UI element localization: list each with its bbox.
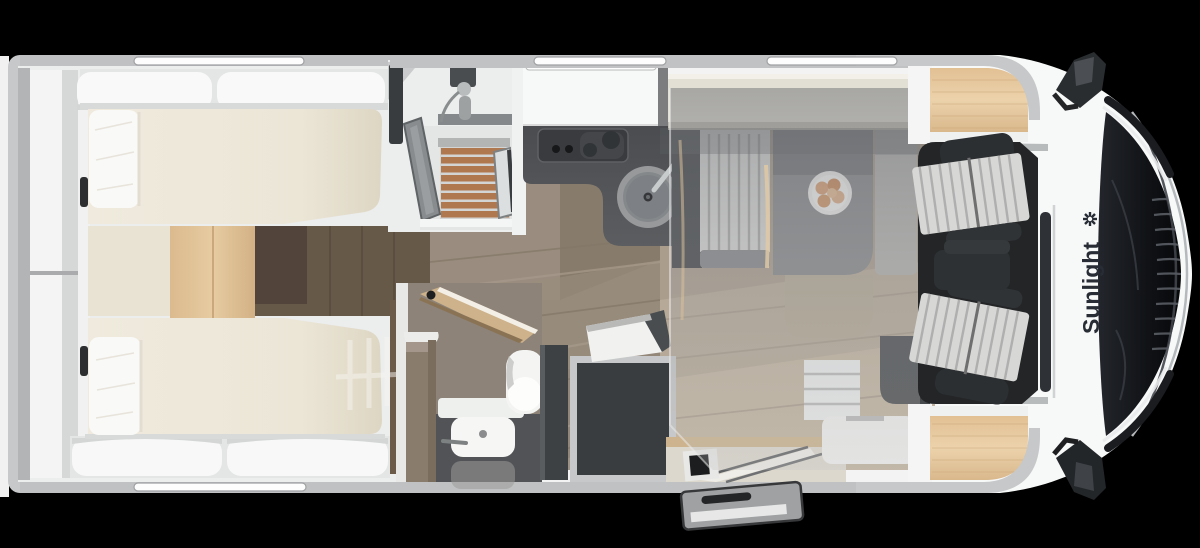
- svg-text:Sunlight: Sunlight: [1078, 242, 1104, 334]
